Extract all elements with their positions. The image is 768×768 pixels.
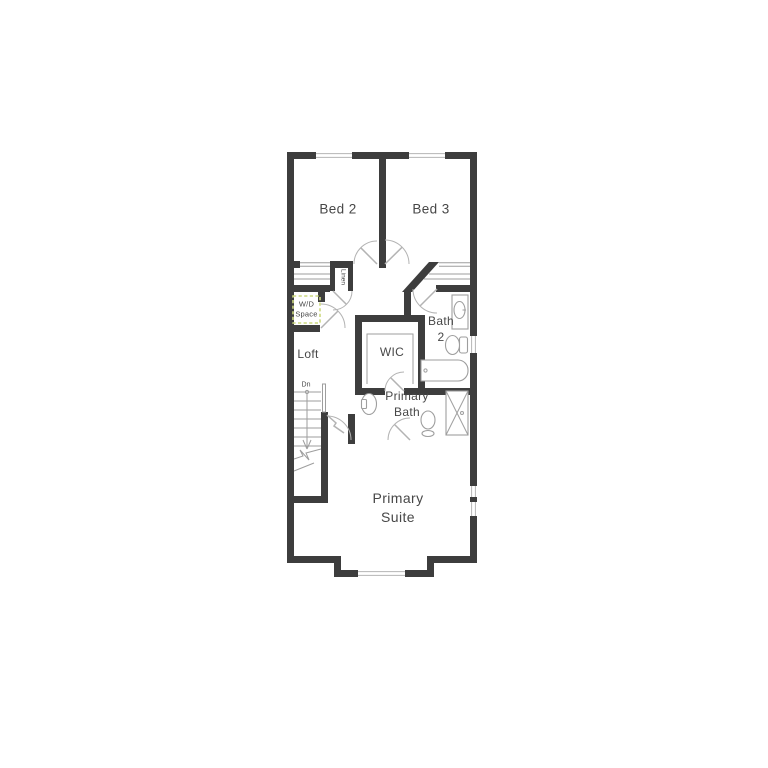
window-primary-suite-2	[470, 502, 477, 516]
floor-plan: Bed 2 Bed 3 Linen W/D Space Bath 2 Loft …	[0, 0, 768, 768]
label-primary-suite: Primary Suite	[372, 491, 423, 524]
wall-bed2-closet-stub	[294, 261, 300, 268]
wall-wic-right	[418, 315, 425, 395]
door-linen	[333, 291, 352, 310]
label-loft: Loft	[297, 348, 318, 360]
wall-bottom-right	[427, 556, 477, 563]
window-bed2	[316, 152, 352, 159]
window-primary-suite-bottom	[358, 570, 405, 577]
bath2-bathtub	[421, 360, 468, 381]
label-bath2: Bath 2	[428, 315, 454, 343]
window-primary-suite-1	[470, 486, 477, 497]
label-wic: WIC	[380, 346, 404, 358]
wall-stairwell-bottom	[287, 496, 328, 503]
primary-bath-pedestal-sink	[362, 394, 377, 415]
door-primary-suite	[327, 415, 351, 440]
wall-wd-bottom	[287, 325, 320, 332]
door-bed2	[354, 241, 377, 264]
door-bed3	[385, 240, 409, 264]
wall-diagonal-bed3-closet	[402, 262, 439, 292]
label-bed2: Bed 2	[319, 202, 356, 216]
wall-right	[470, 152, 477, 563]
bath2-vanity-sink	[452, 295, 468, 329]
wall-top	[287, 152, 477, 159]
wall-linen-left	[330, 261, 335, 291]
wall-linen-right	[348, 261, 353, 291]
wall-closet-row-right	[436, 285, 477, 292]
label-linen: Linen	[338, 269, 345, 285]
wall-primary-bath-left	[348, 414, 355, 444]
primary-bath-shower	[446, 391, 468, 435]
wic-shelves	[367, 334, 413, 384]
stair-railing	[323, 384, 326, 412]
label-primary-bath: Primary Bath	[385, 390, 428, 418]
label-bed3: Bed 3	[412, 202, 449, 216]
stairs-down-arrow	[303, 390, 311, 449]
stair-break-line-1	[294, 449, 321, 460]
door-bath2	[413, 289, 437, 313]
wall-wic-left	[355, 315, 362, 395]
page: { "colors": { "bg": "#ffffff", "wall": "…	[0, 0, 768, 768]
window-bath2	[470, 336, 477, 353]
wall-wic-top	[355, 315, 425, 322]
wall-wd-right-stub	[318, 285, 325, 302]
stairs-down	[294, 384, 326, 471]
label-wd-space: W/D Space	[295, 301, 317, 318]
wall-bottom-left	[287, 556, 341, 563]
stair-break-line-2	[294, 463, 314, 471]
window-bed3	[409, 152, 445, 159]
wall-bedroom-divider	[379, 159, 386, 268]
wall-stairwell-right	[321, 412, 328, 503]
door-primary-bath	[388, 418, 410, 440]
floor-plan-drawing	[0, 0, 768, 768]
label-stairs-dn: Dn	[302, 382, 311, 389]
